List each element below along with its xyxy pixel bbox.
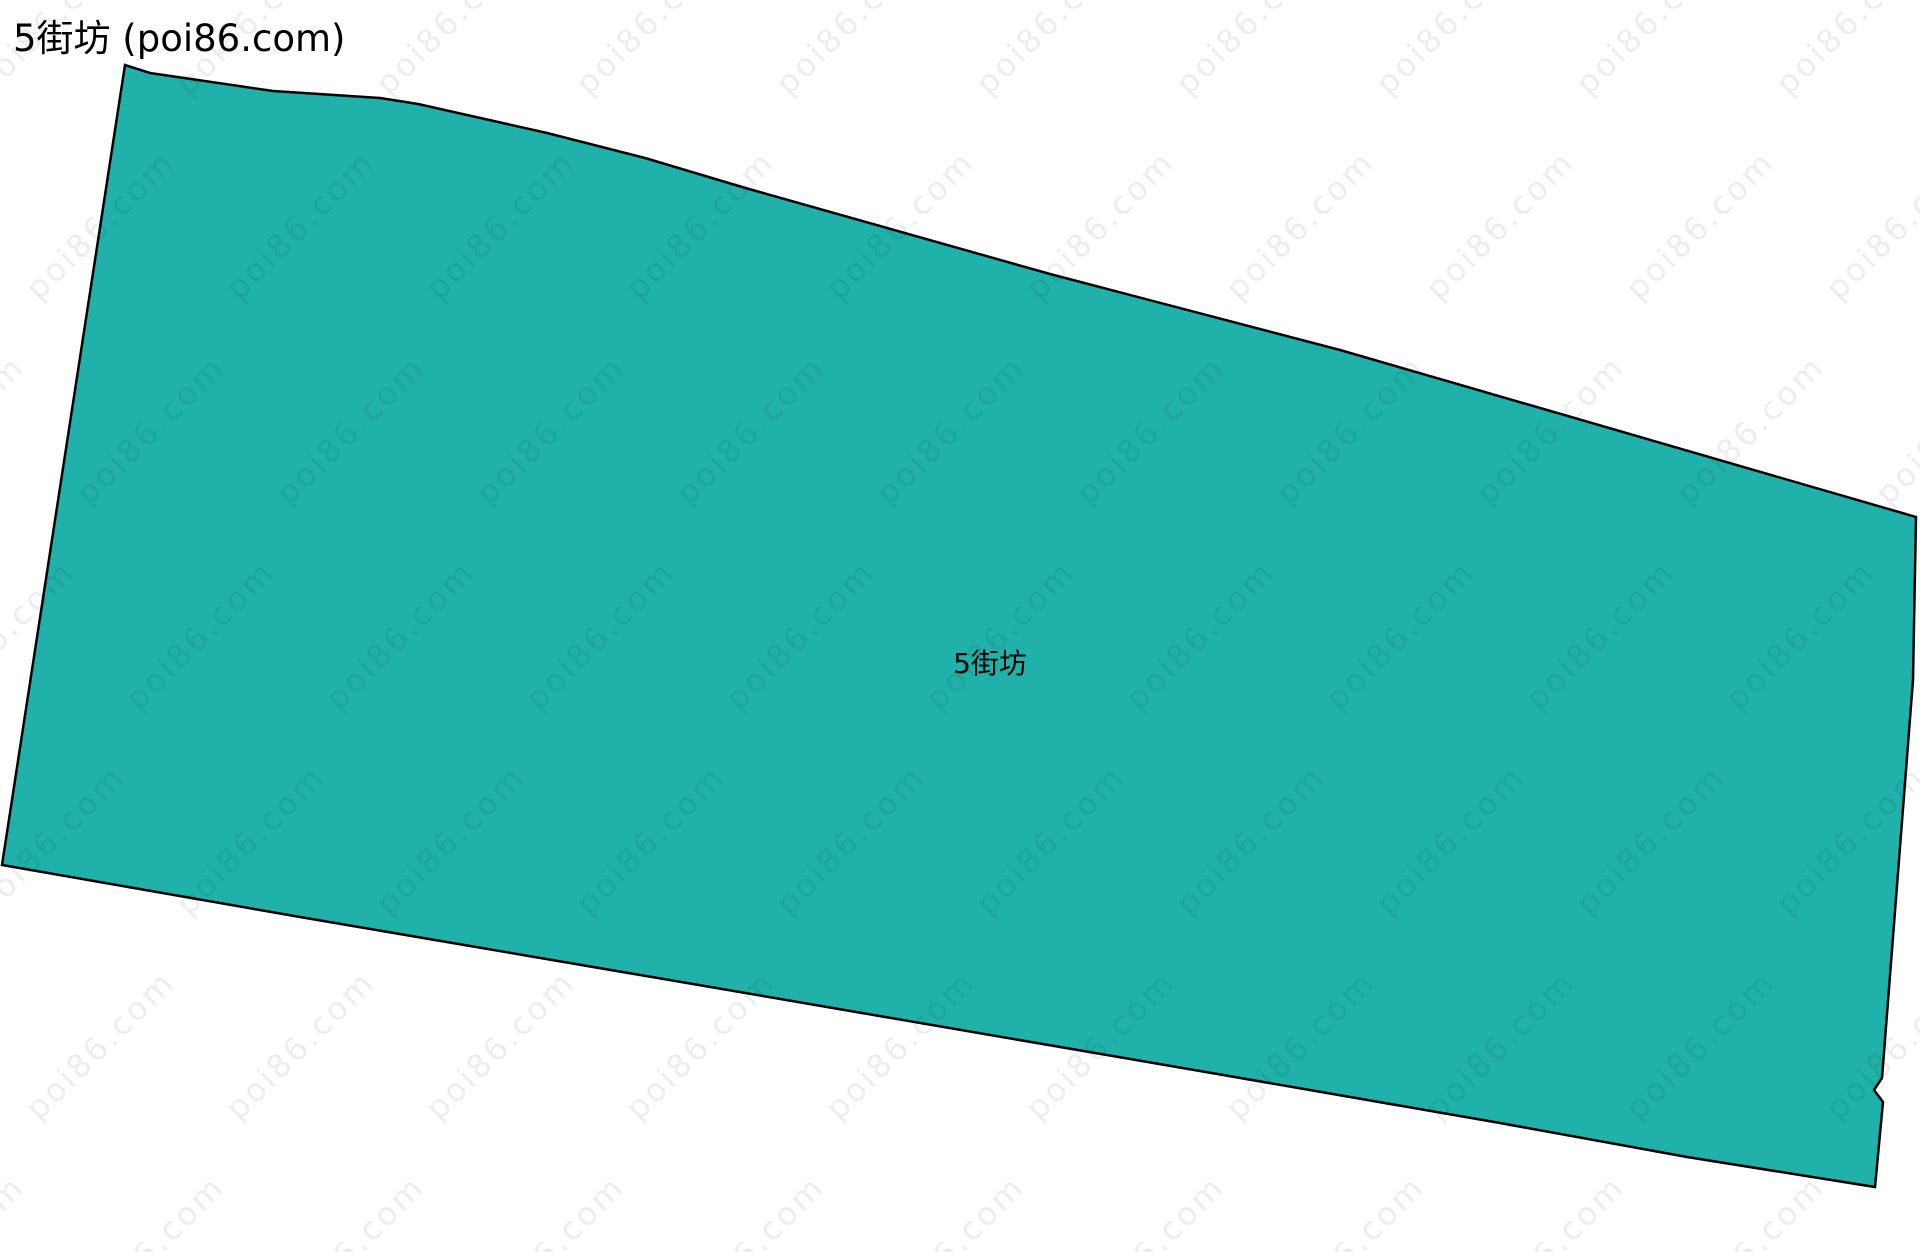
district-map [0,0,1920,1252]
district-label: 5街坊 [953,642,1027,682]
district-polygon[interactable] [2,65,1916,1187]
map-canvas: poi86.compoi86.compoi86.compoi86.compoi8… [0,0,1920,1252]
page-title: 5街坊 (poi86.com) [13,8,345,62]
